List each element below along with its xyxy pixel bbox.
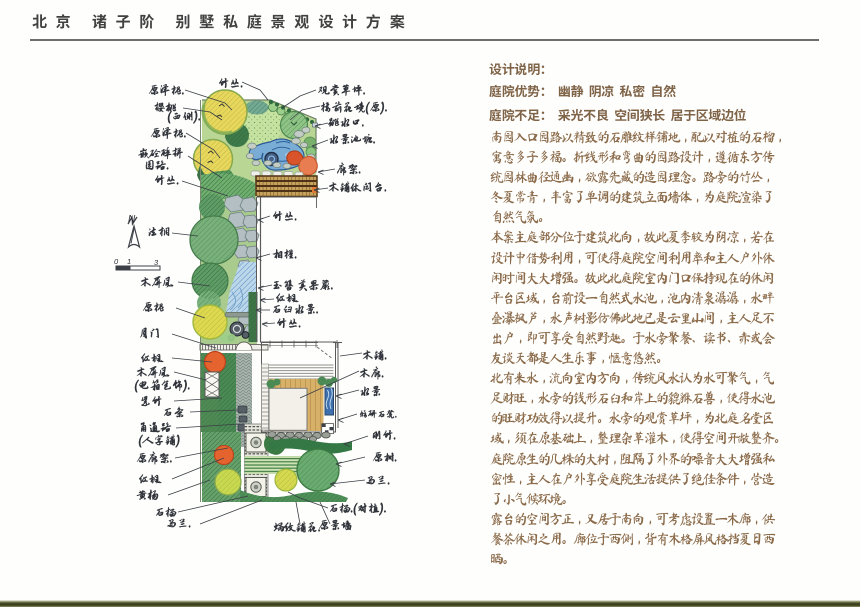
svg-text:石条: 石条 (162, 406, 185, 419)
svg-text:木廊.: 木廊. (359, 366, 384, 380)
svg-text:刚竹.: 刚竹. (371, 429, 396, 442)
svg-text:马兰.: 马兰. (166, 517, 191, 530)
svg-text:黄杨: 黄杨 (136, 489, 159, 502)
svg-text:廊架.: 廊架. (336, 162, 361, 176)
svg-text:红枫: 红枫 (138, 473, 161, 486)
svg-text:水景池塘.: 水景池塘. (328, 133, 375, 146)
svg-text:园路.: 园路. (144, 159, 169, 172)
svg-text:原景墙: 原景墙 (318, 519, 352, 532)
svg-text:楼前花境(原).: 楼前花境(原). (320, 101, 387, 115)
svg-text:玉簪 美果蕨.: 玉簪 美果蕨. (272, 279, 333, 292)
svg-text:法桐: 法桐 (147, 226, 170, 239)
svg-text:石榴.(对植).: 石榴.(对植). (328, 502, 386, 516)
svg-text:木铺休闲台.: 木铺休闲台. (328, 181, 387, 194)
svg-text:原树.: 原树. (372, 451, 397, 464)
svg-text:原洋槐.: 原洋槐. (150, 127, 186, 140)
svg-text:相槿.: 相槿. (272, 248, 297, 261)
svg-text:原槐: 原槐 (142, 301, 165, 314)
svg-text:跳水口.: 跳水口. (328, 116, 364, 129)
svg-text:修研石凳.: 修研石凳. (359, 410, 397, 420)
svg-text:观赏草坪.: 观赏草坪. (318, 84, 365, 97)
svg-text:(电箱包饰).: (电箱包饰). (134, 379, 190, 393)
svg-text:(人字铺): (人字铺) (138, 434, 180, 448)
svg-text:竹丛.: 竹丛. (276, 317, 301, 330)
svg-text:竹丛.: 竹丛. (272, 210, 297, 223)
svg-text:原洋槐.: 原洋槐. (148, 84, 184, 97)
svg-text:0: 0 (114, 257, 119, 266)
svg-text:紫竹: 紫竹 (140, 395, 163, 408)
svg-text:木屏风: 木屏风 (140, 275, 174, 289)
svg-text:甬通路: 甬通路 (138, 421, 172, 434)
svg-text:(西侧).: (西侧). (167, 110, 200, 124)
svg-text:嵌砼碎拼: 嵌砼碎拼 (138, 146, 183, 160)
svg-text:红枫: 红枫 (140, 352, 163, 365)
svg-text:竹丛.: 竹丛. (154, 174, 179, 187)
svg-text:蜗纹铺花.: 蜗纹铺花. (273, 521, 320, 534)
svg-text:木屏风: 木屏风 (136, 365, 170, 379)
svg-text:竹丛.: 竹丛. (218, 77, 243, 90)
svg-text:马兰.: 马兰. (365, 474, 390, 487)
svg-text:原廊架.: 原廊架. (136, 451, 172, 465)
svg-text:石臼水景.: 石臼水景. (271, 303, 318, 316)
svg-text:水景: 水景 (359, 385, 382, 398)
svg-text:N: N (128, 214, 136, 225)
svg-text:1: 1 (127, 257, 131, 266)
svg-text:月门: 月门 (138, 327, 161, 340)
svg-text:木铺.: 木铺. (362, 349, 387, 362)
